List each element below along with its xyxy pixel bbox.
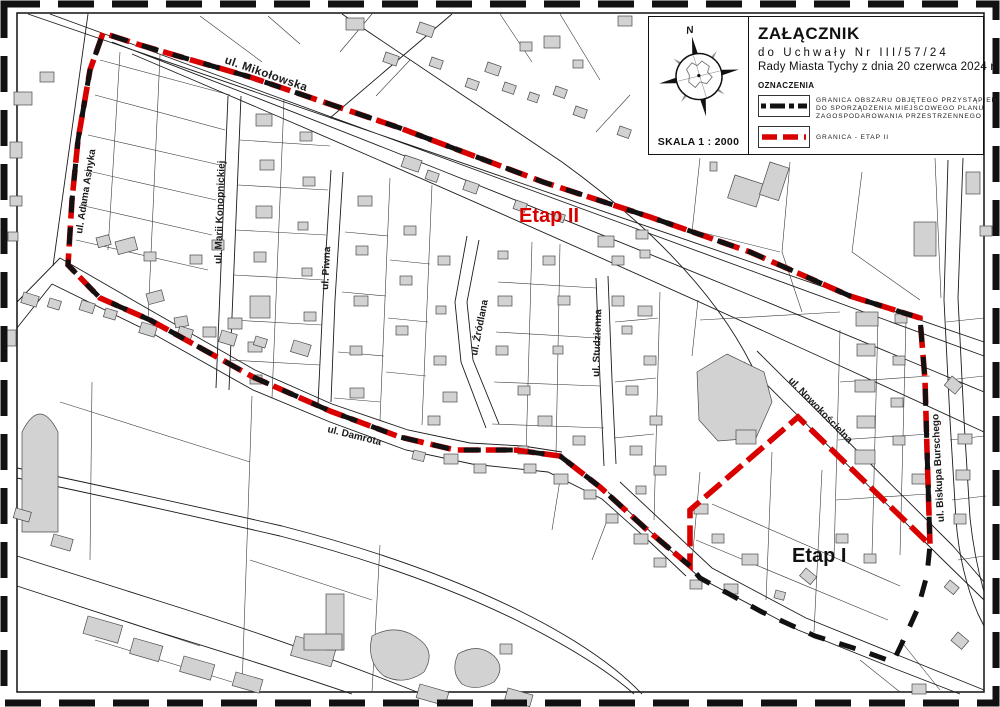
title-info-cell: ZAŁĄCZNIK do Uchwały Nr III/57/24 Rady M…: [749, 17, 1000, 154]
etap-i-label: Etap I: [792, 545, 846, 567]
compass-rose: N: [653, 19, 745, 123]
street-label-piwna: ul. Piwna: [320, 246, 333, 290]
legend-entry-label: GRANICA - ETAP II: [816, 126, 889, 142]
legend-heading: OZNACZENIA: [758, 81, 1000, 90]
legend-entry-etap2-boundary: GRANICA - ETAP II: [758, 126, 1000, 148]
plan-document: ul. Mikołowska ul. Adama Asnyka ul. Mari…: [0, 0, 1000, 707]
title-block: N: [648, 16, 984, 155]
resolution-number: do Uchwały Nr III/57/24: [758, 47, 1000, 59]
black-dashed-line-symbol: [758, 95, 810, 117]
scale-label: SKALA 1 : 2000: [649, 136, 748, 148]
etap-ii-label: Etap II: [519, 205, 579, 227]
legend-entry-plan-boundary: GRANICA OBSZARU OBJĘTEGO PRZYSTĄPIENIEM …: [758, 95, 1000, 121]
legend-entry-label: GRANICA OBSZARU OBJĘTEGO PRZYSTĄPIENIEM …: [816, 95, 1000, 121]
north-indicator: N: [685, 25, 695, 37]
compass-cell: N: [649, 17, 749, 154]
resolution-date: Rady Miasta Tychy z dnia 20 czerwca 2024…: [758, 61, 1000, 73]
red-dashed-line-symbol: [758, 126, 810, 148]
document-title: ZAŁĄCZNIK: [758, 25, 1000, 43]
